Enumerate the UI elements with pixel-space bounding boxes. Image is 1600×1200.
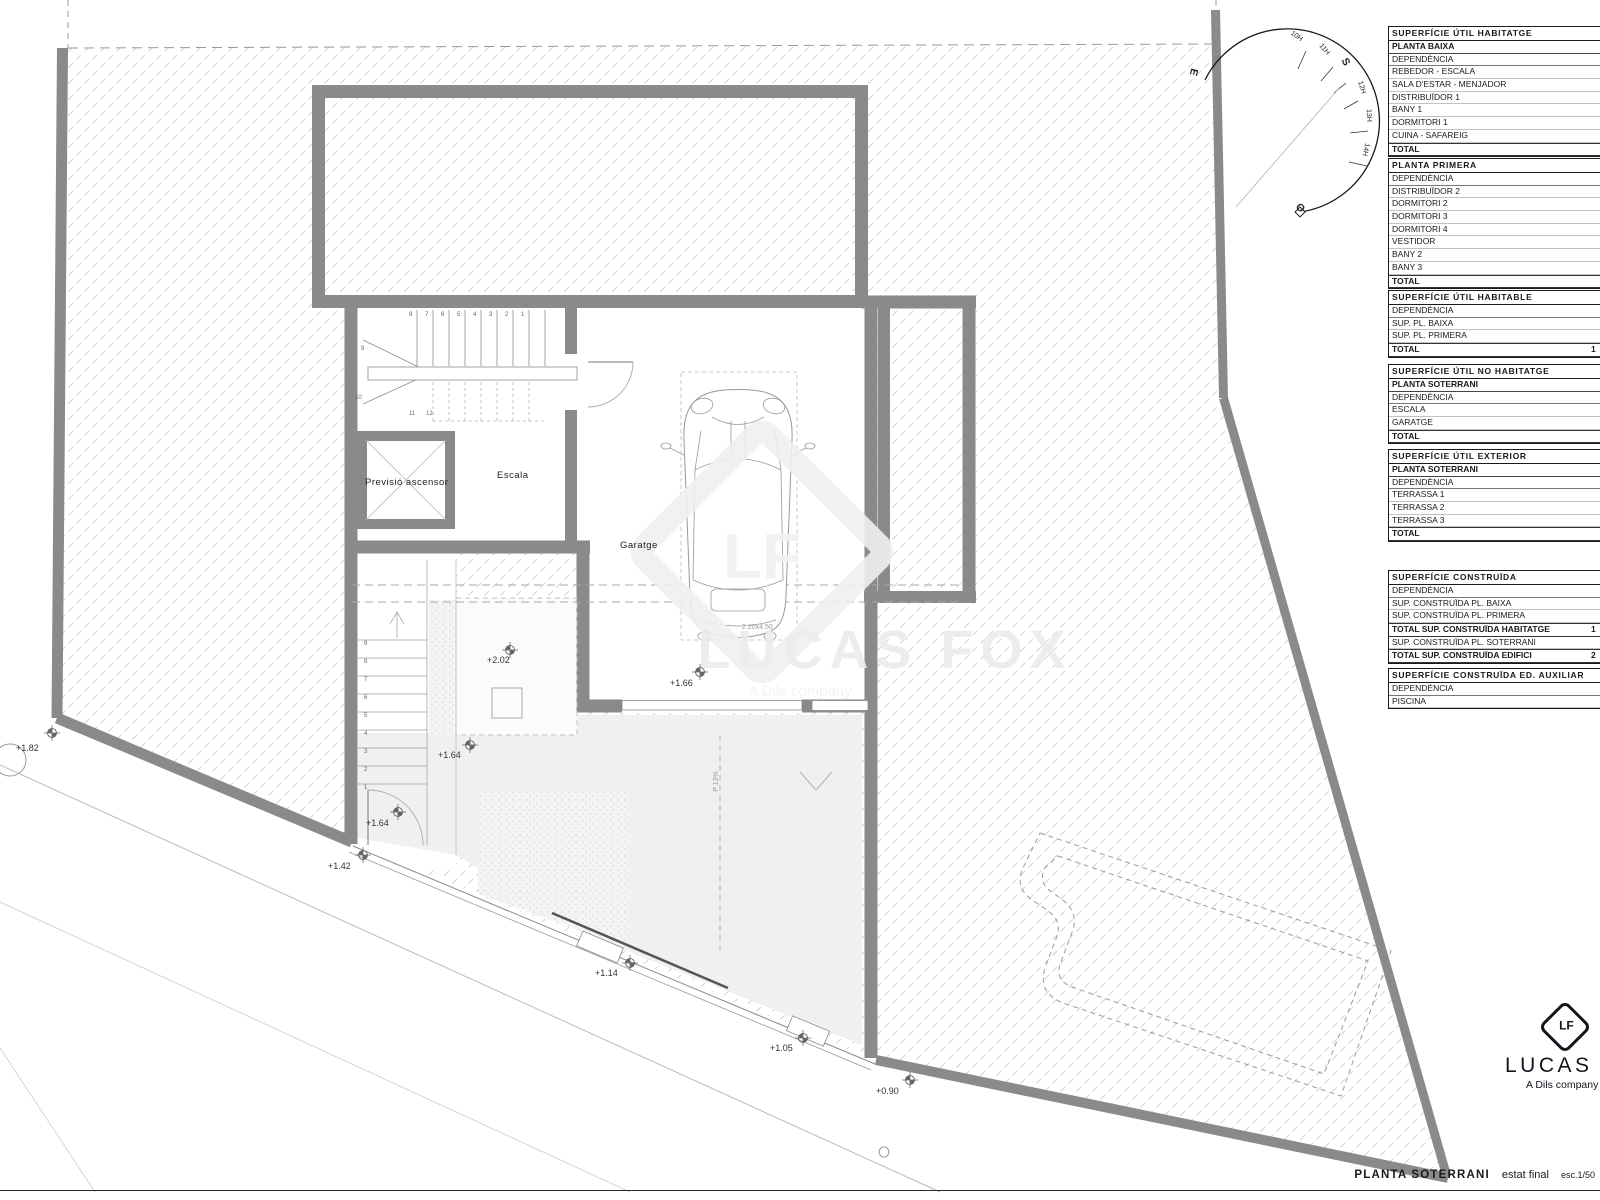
table-row: DEPENDÈNCIA	[1389, 683, 1600, 696]
table-row: DISTRIBUÏDOR 1	[1389, 92, 1600, 105]
table-row: BANY 2	[1389, 249, 1600, 262]
table-row: SUP. PL. PRIMERA	[1389, 330, 1600, 343]
table-row: DEPENDÈNCIA	[1389, 477, 1600, 490]
table-row: REBEDOR - ESCALA	[1389, 66, 1600, 79]
table-row: DEPENDÈNCIA	[1389, 173, 1600, 186]
table-row: TOTAL SUP. CONSTRUÏDA EDIFICI2	[1389, 649, 1600, 663]
table-row: DORMITORI 2	[1389, 198, 1600, 211]
table-title: SUPERFÍCIE ÚTIL HABITATGE	[1389, 27, 1600, 41]
table-row: PLANTA SOTERRANI	[1389, 379, 1600, 392]
table-row: DORMITORI 3	[1389, 211, 1600, 224]
table-row: TOTAL SUP. CONSTRUÏDA HABITATGE1	[1389, 623, 1600, 637]
table-row: SUP. PL. BAIXA	[1389, 318, 1600, 331]
table-row: DEPENDÈNCIA	[1389, 305, 1600, 318]
svg-text:A Dils company: A Dils company	[748, 683, 852, 700]
garage-door	[622, 701, 802, 711]
table-row: SUP. CONSTRUÏDA PL. BAIXA	[1389, 598, 1600, 611]
logo-monogram: LF	[1550, 1019, 1582, 1033]
table-row: ESCALA	[1389, 404, 1600, 417]
table-row: TOTAL	[1389, 143, 1600, 157]
table-row: PISCINA	[1389, 696, 1600, 709]
table-superficie-construida-ed-auxiliar: SUPERFÍCIE CONSTRUÏDA ED. AUXILIAR DEPEN…	[1388, 668, 1600, 709]
svg-text:LF: LF	[723, 520, 801, 592]
table-row: DORMITORI 4	[1389, 224, 1600, 237]
table-row: VESTIDOR	[1389, 236, 1600, 249]
table-title: SUPERFÍCIE ÚTIL HABITABLE	[1389, 291, 1600, 305]
gravel-texture	[429, 600, 456, 735]
table-row: CUINA - SAFAREIG	[1389, 130, 1600, 143]
table-planta-primera: PLANTA PRIMERA DEPENDÈNCIADISTRIBUÏDOR 2…	[1388, 158, 1600, 289]
logo-tagline: A Dils company	[1526, 1079, 1598, 1091]
table-title: SUPERFÍCIE ÚTIL EXTERIOR	[1389, 450, 1600, 464]
table-title: PLANTA PRIMERA	[1389, 159, 1600, 173]
table-row: TERRASSA 1	[1389, 489, 1600, 502]
plan-scale: esc.1/50	[1561, 1170, 1595, 1180]
table-row: TOTAL	[1389, 430, 1600, 444]
table-row: SUP. CONSTRUÏDA PL. SOTERRANI	[1389, 637, 1600, 650]
table-row: SALA D'ESTAR - MENJADOR	[1389, 79, 1600, 92]
table-row: TOTAL	[1389, 527, 1600, 541]
table-superficie-util-exterior: SUPERFÍCIE ÚTIL EXTERIOR PLANTA SOTERRAN…	[1388, 449, 1600, 542]
table-row: DEPENDÈNCIA	[1389, 585, 1600, 598]
table-row: DISTRIBUÏDOR 2	[1389, 186, 1600, 199]
table-row: TERRASSA 3	[1389, 515, 1600, 528]
table-title: SUPERFÍCIE CONSTRUÏDA ED. AUXILIAR	[1389, 669, 1600, 683]
plan-state: estat final	[1502, 1169, 1549, 1181]
table-row: DEPENDÈNCIA	[1389, 392, 1600, 405]
sun-path-diagram	[1205, 29, 1379, 217]
logo-name: LUCAS FOX	[1505, 1054, 1600, 1078]
table-superficie-util-habitatge: SUPERFÍCIE ÚTIL HABITATGE PLANTA BAIXADE…	[1388, 26, 1600, 157]
boundary-wall-left	[57, 48, 63, 718]
sheet-title: PLANTA SOTERRANI estat final esc.1/50	[1354, 1169, 1595, 1181]
table-row: PLANTA BAIXA	[1389, 41, 1600, 54]
plan-title: PLANTA SOTERRANI	[1354, 1169, 1489, 1181]
table-row: SUP. CONSTRUÏDA PL. PRIMERA	[1389, 610, 1600, 623]
table-row: BANY 3	[1389, 262, 1600, 275]
table-row: TOTAL1	[1389, 343, 1600, 357]
table-superficie-util-habitable: SUPERFÍCIE ÚTIL HABITABLE DEPENDÈNCIASUP…	[1388, 290, 1600, 358]
table-row: GARATGE	[1389, 417, 1600, 430]
table-row: DEPENDÈNCIA	[1389, 54, 1600, 67]
floor-plan-canvas: LF LUCAS FOX A Dils company	[0, 0, 1600, 1200]
table-row: DORMITORI 1	[1389, 117, 1600, 130]
lucas-fox-logo: LF LUCAS FOX A Dils company	[1505, 1002, 1600, 1092]
sheet-border	[0, 1190, 1600, 1191]
table-row: TERRASSA 2	[1389, 502, 1600, 515]
table-title: SUPERFÍCIE ÚTIL NO HABITATGE	[1389, 365, 1600, 379]
logo-diamond-icon: LF	[1538, 1000, 1592, 1054]
table-superficie-construida: SUPERFÍCIE CONSTRUÏDA DEPENDÈNCIASUP. CO…	[1388, 570, 1600, 664]
table-title: SUPERFÍCIE CONSTRUÏDA	[1389, 571, 1600, 585]
table-row: PLANTA SOTERRANI	[1389, 464, 1600, 477]
table-superficie-util-no-habitatge: SUPERFÍCIE ÚTIL NO HABITATGE PLANTA SOTE…	[1388, 364, 1600, 444]
table-row: BANY 1	[1389, 104, 1600, 117]
svg-text:LUCAS FOX: LUCAS FOX	[697, 620, 1072, 680]
table-row: TOTAL	[1389, 275, 1600, 289]
